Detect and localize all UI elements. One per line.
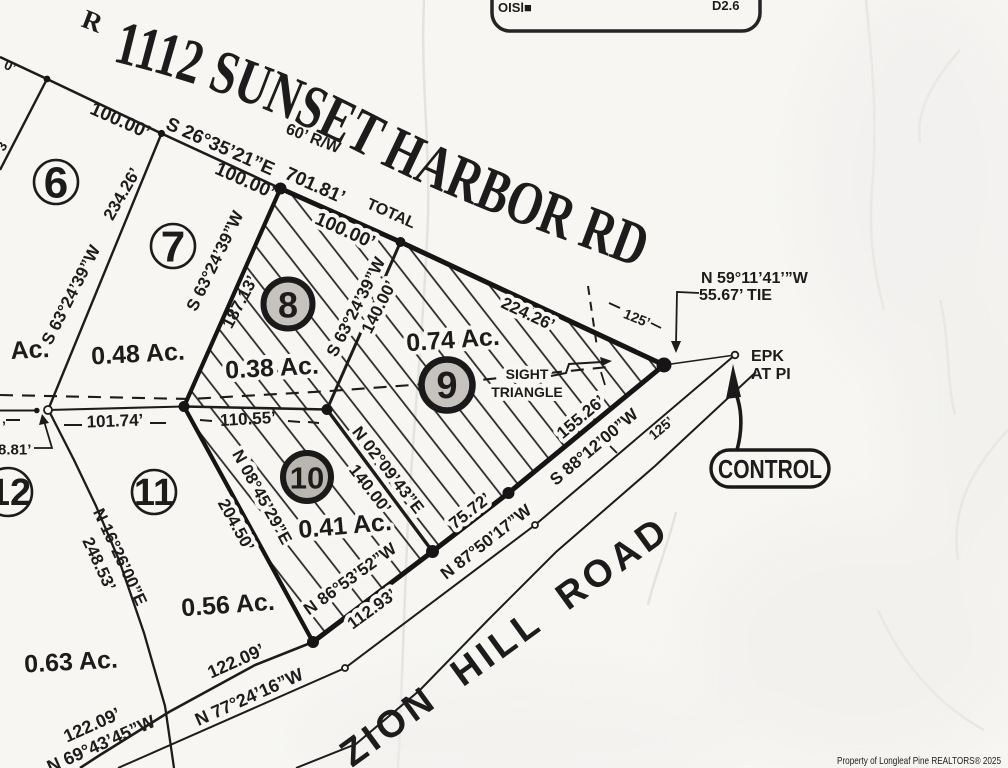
svg-text:8.81’: 8.81’ [0,442,31,459]
svg-text:0.63 Ac.: 0.63 Ac. [24,646,119,679]
svg-text:12: 12 [0,472,31,514]
svg-text:D2.6: D2.6 [712,0,739,13]
svg-text:10: 10 [290,461,324,496]
svg-text:Property of Longleaf Pine REAL: Property of Longleaf Pine REALTORS® 2025 [837,755,1001,767]
svg-text:7: 7 [161,223,185,272]
svg-text:0.48 Ac.: 0.48 Ac. [91,338,186,371]
svg-text:55.67’ TIE: 55.67’ TIE [699,287,772,304]
svg-text:9: 9 [436,365,457,407]
svg-text:6: 6 [44,159,68,208]
svg-text:110.55’: 110.55’ [220,408,277,430]
svg-text:EPK: EPK [751,348,784,365]
svg-text:11: 11 [134,472,174,514]
svg-text:0.38 Ac.: 0.38 Ac. [225,352,320,385]
svg-text:8: 8 [278,285,298,326]
svg-text:’: ’ [2,418,6,434]
svg-text:SIGHT: SIGHT [506,366,549,382]
svg-text:AT PI: AT PI [751,366,791,383]
svg-text:101.74’: 101.74’ [86,411,143,432]
svg-text:Ac.: Ac. [10,335,50,365]
svg-text:CONTROL: CONTROL [718,454,822,484]
svg-text:TRIANGLE: TRIANGLE [491,384,563,400]
svg-text:N 59°11’41’”W: N 59°11’41’”W [701,270,809,287]
svg-text:OISl■: OISl■ [498,0,532,15]
